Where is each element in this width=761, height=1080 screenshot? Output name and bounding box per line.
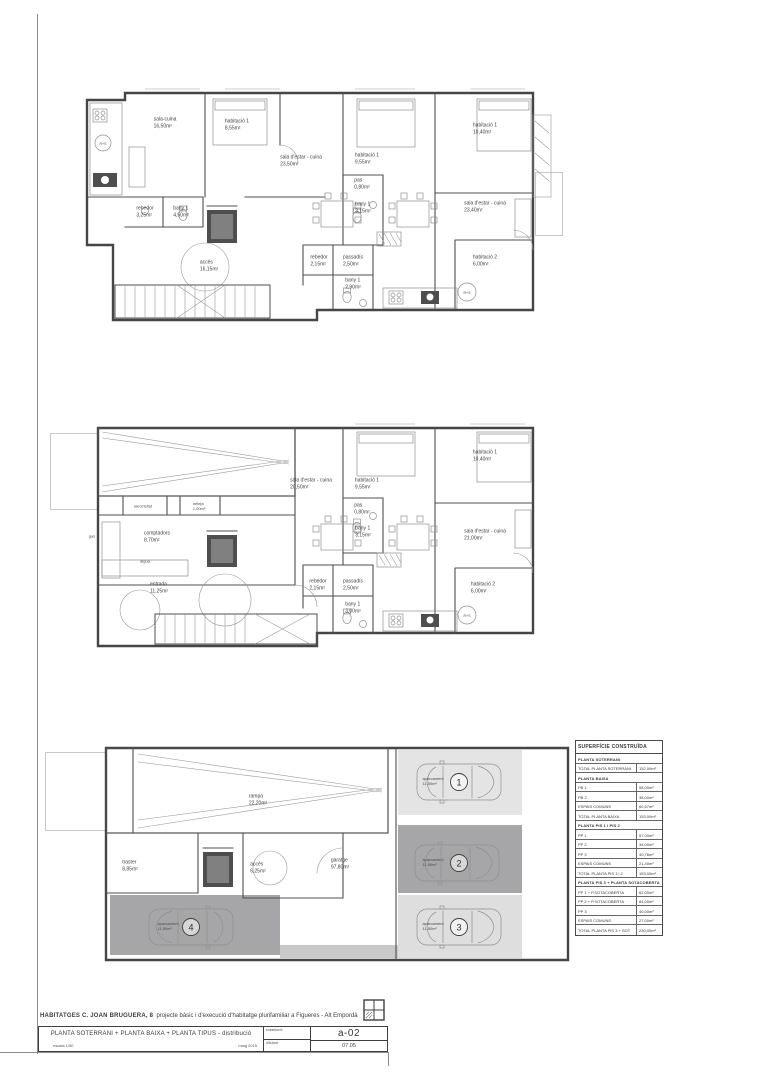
table-row: PLANTA SOTERRANI [576,754,662,764]
table-row: TOTAL PLANTA PIS 1 i 2153,00m² [576,868,662,878]
room-label: pas 0,80m² [354,178,370,191]
room-label: habitació 2 6,00m² [471,582,495,595]
table-cell-value: 27,00m² [636,916,662,925]
room-label: sala-cuina 16,50m² [154,117,177,130]
table-cell-value: 58,00m² [636,783,662,792]
table-row: PP 340,76m² [576,849,662,859]
table-cell-value: 21,40m² [636,859,662,868]
svg-text:R+S: R+S [463,614,471,618]
table-row: TOTAL PLANTA PIS 3 + SOT230,00m² [576,925,662,935]
room-label: neteja 1,00m² [193,501,205,511]
table-cell-label: ESPAIS COMUNS [576,802,636,811]
table-row: PP 157,00m² [576,830,662,840]
title-block-main: PLANTA SOTERRANI + PLANTA BAIXA + PLANTA… [39,1027,264,1051]
table-cell-label: ESPAIS COMUNS [576,916,636,925]
table-row: PLANTA PIS 1 i PIS 2 [576,821,662,831]
title-block-sheet: a-02 07.05 [311,1027,387,1051]
sheet-bottom-border [0,1052,389,1053]
room-label: accés 6,25m² [250,862,266,875]
table-row: PP 234,00m² [576,840,662,850]
room-label: gas [89,533,95,538]
drawing-sheet: { "sheet": { "project_name": "HABITATGES… [0,0,761,1080]
room-label: habitació 1 10,40m² [473,123,497,136]
table-cell-label: TOTAL PLANTA PIS 1 i 2 [576,868,636,877]
table-cell-value: 62,00m² [636,887,662,896]
table-row: PLANTA PIS 3 + PLANTA SOTACOBERTA [576,878,662,888]
areas-table-title: SUPERFÍCIE CONSTRUÏDA [576,741,662,754]
sheet-code: a-02 [311,1027,387,1041]
table-cell-value: 153,00m² [636,811,662,820]
table-cell-label: ESPAIS COMUNS [576,859,636,868]
table-cell-value: 152,00m² [636,764,662,773]
table-row: TOTAL PLANTA SOTERRANI152,00m² [576,764,662,774]
table-cell-value: 38,00m² [636,792,662,801]
table-cell-label: PP 3 [576,849,636,858]
table-cell-label: PP 2 + P.SOTACOBERTA [576,897,636,906]
table-cell-value: 40,76m² [636,849,662,858]
room-label: habitació 1 9,55m² [355,153,379,166]
room-label: rebedor 2,15m² [310,255,327,268]
parking-number: 1 [456,778,461,788]
table-cell-value: 34,00m² [636,840,662,849]
table-row: PB 158,00m² [576,783,662,793]
table-cell-label: TOTAL PLANTA SOTERRANI [576,764,636,773]
floor-plan-tipus: R+S R+S sala-cuina 16,50m² habitació 1 8… [85,85,563,335]
room-label: pas 0,80m² [354,503,370,516]
table-row: PLANTA BAIXA [576,773,662,783]
room-label: accés 16,15m² [200,260,218,273]
project-line: HABITATGES C. JOAN BRUGUERA, 8 projecte … [40,1013,358,1019]
field-bottom: dibuixat [264,1040,310,1052]
room-label: bany 1 2,90m² [345,278,361,291]
room-label: sala d'estar - cuina 20,50m² [290,478,332,491]
room-label: traster 8,85m² [122,860,138,873]
room-label: rebedor 2,15m² [309,579,326,592]
room-label: sala d'estar - cuina 23,40m² [464,201,506,214]
table-row: PP 2 + P.SOTACOBERTA84,00m² [576,897,662,907]
room-label: rampa 22,20m² [249,794,267,807]
svg-text:R+S: R+S [463,291,471,295]
room-label: bany 1 3,15m² [355,202,371,215]
table-row: ESPAIS COMUNS21,40m² [576,859,662,869]
table-cell-value: 57,00m² [636,830,662,839]
field-top: substitueix [264,1027,310,1040]
areas-table: SUPERFÍCIE CONSTRUÏDA PLANTA SOTERRANITO… [575,740,663,936]
table-cell-label: PP 2 [576,840,636,849]
table-row: ESPAIS COMUNS60,57m² [576,802,662,812]
drawing-date: maig 2015 [238,1043,257,1048]
table-cell-label: TOTAL PLANTA BAIXA [576,811,636,820]
room-label: habitació 2 6,00m² [473,255,497,268]
room-label: aigua [140,558,150,563]
parking-number: 3 [456,923,461,933]
project-description: projecte bàsic i d'execució d'habitatge … [156,1013,357,1019]
room-label: passadís 2,50m² [343,579,363,592]
area-table-rows: PLANTA SOTERRANITOTAL PLANTA SOTERRANI15… [576,754,662,935]
room-label: bany 1 3,15m² [355,526,371,539]
room-label: garatge 97,80m² [331,858,349,871]
room-label: electricitat [134,503,152,508]
room-label: habitació 1 10,40m² [473,450,497,463]
table-cell-label: PB 2 [576,792,636,801]
table-cell-value: 230,00m² [636,925,662,935]
parking-label: aparcament 11,50m² [422,857,443,867]
sheet-left-border [37,14,38,1054]
room-label: sala d'estar - cuina 21,00m² [464,529,506,542]
table-cell-label: TOTAL PLANTA PIS 3 + SOT [576,925,636,935]
room-label: comptadors 8,70m² [144,531,170,544]
parking-label: aparcament 11,50m² [157,921,178,931]
table-cell-value: 84,00m² [636,897,662,906]
title-block-fields: substitueix dibuixat [264,1027,311,1051]
table-cell-label: PB 1 [576,783,636,792]
project-name: HABITATGES C. JOAN BRUGUERA, 8 [40,1013,153,1019]
room-label: passadís 2,50m² [343,255,363,268]
parking-number: 4 [188,923,193,933]
table-row: PP 340,00m² [576,906,662,916]
room-label: habitació 1 9,55m² [355,478,379,491]
parking-label: aparcament 11,50m² [422,776,443,786]
key-plan-icon [363,999,385,1021]
room-label: sala d'estar - cuina 23,50m² [280,155,322,168]
table-row: PP 1 + P.SOTACOBERTA62,00m² [576,887,662,897]
room-label: entrada 11,25m² [150,582,168,595]
floor-plan-baixa: R+S electricitat neteja 1,00m² comptador… [85,418,563,658]
room-label: rebedor 3,25m² [136,206,153,219]
table-cell-label: PP 1 [576,830,636,839]
table-row: PB 238,00m² [576,792,662,802]
floor-plan-soterrani: 1 2 3 4 rampa 22,20m² traster 8,85m² acc… [98,738,573,970]
room-label: bany 1 3,00m² [345,602,361,615]
sheet-number: 07.05 [311,1041,387,1051]
sheet-corner-tick [388,1052,389,1066]
table-cell-label: PP 1 + P.SOTACOBERTA [576,887,636,896]
table-cell-value: 60,57m² [636,802,662,811]
table-cell-label: PP 3 [576,906,636,915]
drawing-scale: escala 1/50 [53,1043,73,1048]
svg-text:R+S: R+S [99,142,107,146]
table-cell-value: 153,00m² [636,868,662,877]
table-cell-value: 40,00m² [636,906,662,915]
title-block: PLANTA SOTERRANI + PLANTA BAIXA + PLANTA… [38,1026,388,1052]
parking-label: aparcament 11,50m² [422,921,443,931]
parking-number: 2 [456,859,461,869]
room-label: habitació 1 8,55m² [225,119,249,132]
table-row: TOTAL PLANTA BAIXA153,00m² [576,811,662,821]
floor-plan-soterrani-drawing: 1 2 3 4 [98,738,573,970]
room-label: bany 1 4,50m² [173,206,189,219]
drawing-title: PLANTA SOTERRANI + PLANTA BAIXA + PLANTA… [39,1027,263,1040]
table-row: ESPAIS COMUNS27,00m² [576,916,662,926]
